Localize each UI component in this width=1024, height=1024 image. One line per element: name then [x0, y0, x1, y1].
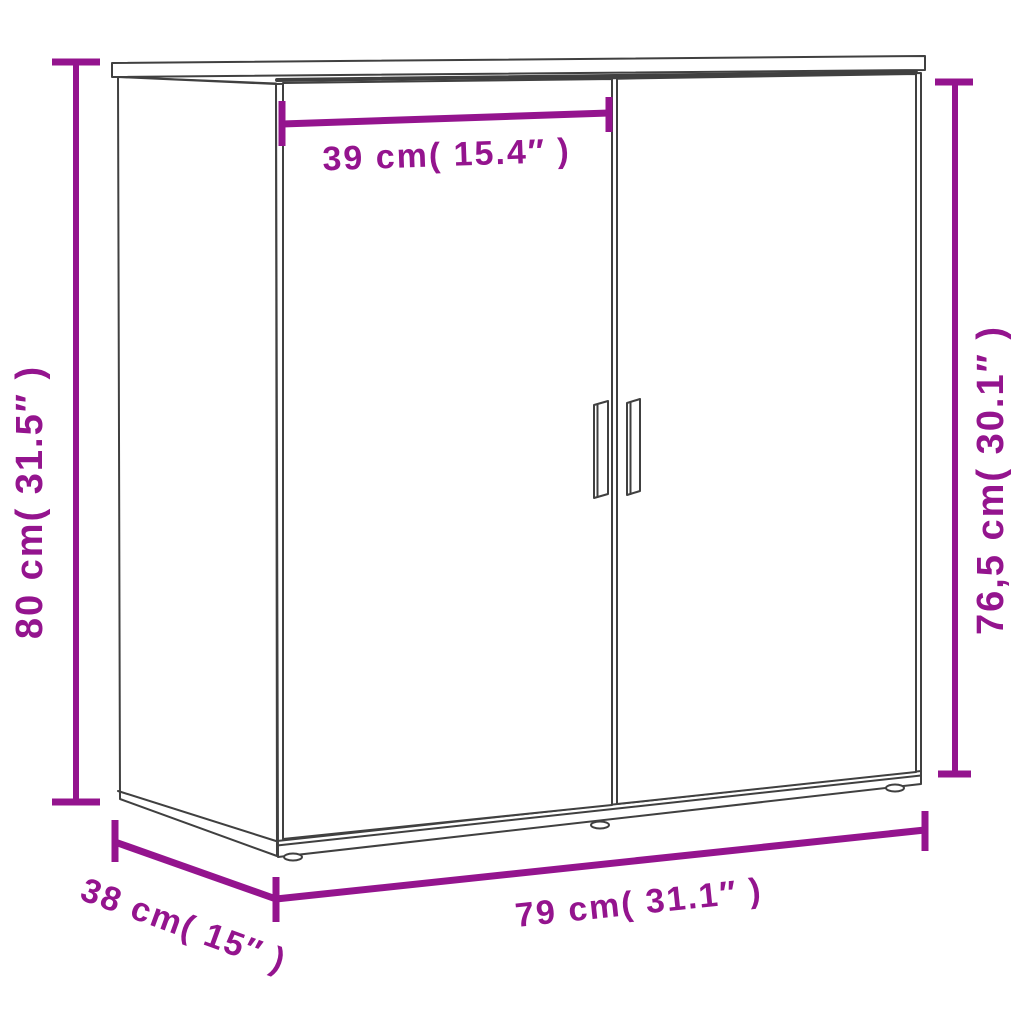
left-door [283, 79, 612, 839]
cabinet-side-panel [118, 77, 277, 856]
cabinet-drawing [112, 56, 925, 861]
label-depth: 38 cm( 15″ ) [76, 871, 292, 981]
product-dimension-diagram: 39 cm( 15.4″ ) 80 cm( 31.5″ ) 76,5 cm( 3… [0, 0, 1024, 1024]
dimension-line-height-right [935, 82, 973, 774]
diagram-canvas: 39 cm( 15.4″ ) 80 cm( 31.5″ ) 76,5 cm( 3… [0, 0, 1024, 1024]
left-door-handle [594, 401, 608, 498]
right-door-handle [627, 399, 640, 495]
label-length: 79 cm( 31.1″ ) [513, 871, 764, 935]
label-height-right: 76,5 cm( 30.1″ ) [970, 325, 1012, 635]
cabinet-foot-right [886, 785, 904, 792]
right-door [617, 74, 916, 804]
cabinet-foot-center [591, 822, 609, 829]
cabinet-foot-left [284, 854, 302, 861]
dimension-line-height-left [52, 62, 100, 803]
label-height-left: 80 cm( 31.5″ ) [9, 365, 51, 639]
